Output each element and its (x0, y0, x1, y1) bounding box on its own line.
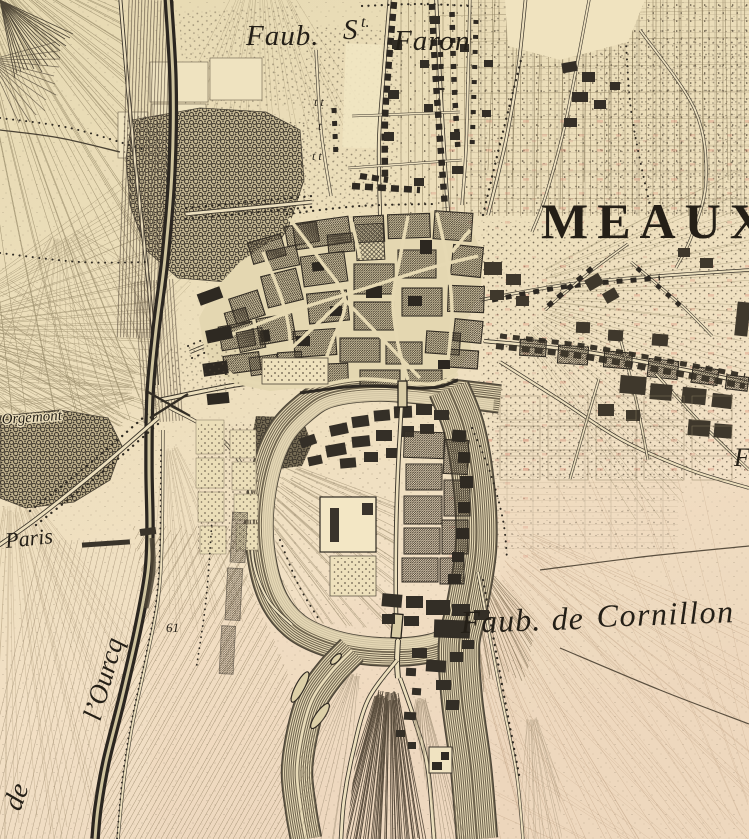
svg-text:Cornillon: Cornillon (596, 593, 735, 634)
svg-text:Faub.: Faub. (245, 20, 319, 52)
svg-text:Paris: Paris (3, 523, 54, 553)
svg-text:F: F (733, 443, 749, 472)
svg-text:t.: t. (361, 14, 369, 31)
svg-text:MEAUX: MEAUX (541, 193, 749, 249)
svg-text:Faub.: Faub. (459, 601, 542, 640)
svg-text:de: de (551, 600, 584, 637)
svg-text:Faron: Faron (393, 25, 470, 57)
svg-text:61: 61 (166, 620, 179, 635)
svg-text:t t: t t (312, 149, 322, 163)
svg-text:t t: t t (314, 95, 324, 109)
svg-text:S: S (343, 14, 358, 46)
